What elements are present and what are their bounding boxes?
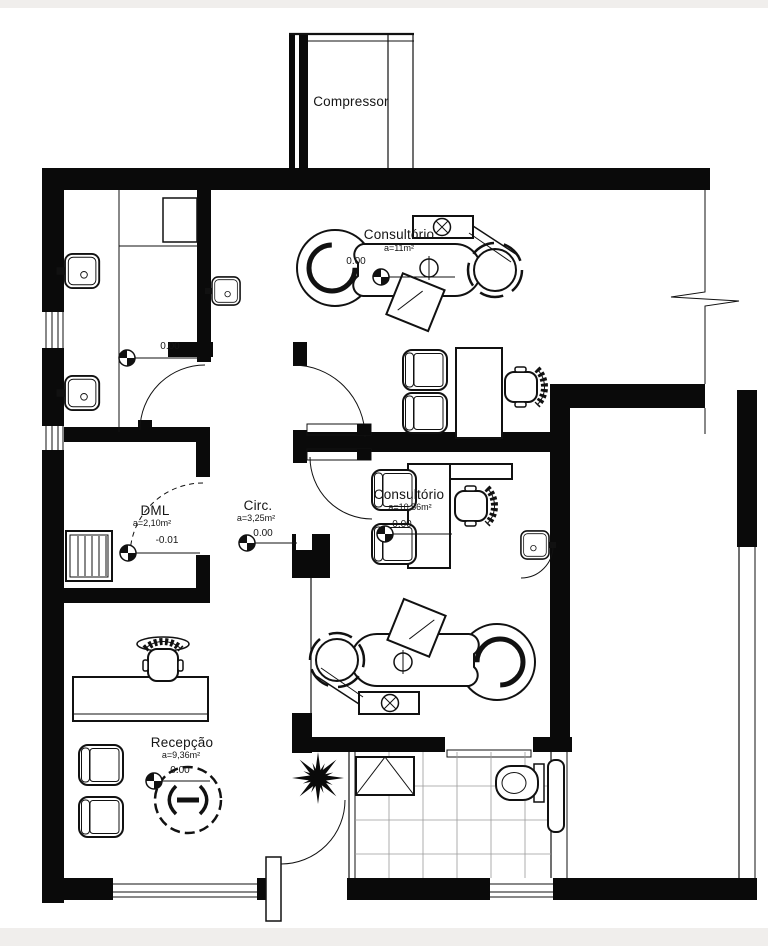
- level-text-dml: -0.01: [156, 536, 179, 546]
- level-marker-recepcao: [146, 773, 162, 789]
- waiting-chair-b: [79, 797, 123, 837]
- floor-plan-drawing: [0, 0, 768, 946]
- area-label-circ: a=3,25m²: [237, 514, 275, 523]
- area-label-recepcao: a=9,36m²: [162, 751, 200, 760]
- consultorio1-furniture: [205, 216, 545, 438]
- toilet: [496, 764, 544, 802]
- dental-chair-2: [310, 599, 535, 714]
- level-text-consultorio1: 0.00: [346, 257, 365, 267]
- level-text-recepcao: 0.00: [170, 766, 189, 776]
- room-label-compressor: Compressor: [313, 95, 389, 109]
- office-chair-consultorio1: [505, 367, 545, 407]
- shower-box: [356, 757, 414, 795]
- floor-plan-page: Compressor Consultório a=11m² 0.00 0.00 …: [0, 0, 768, 946]
- room-label-dml: DML: [140, 504, 169, 518]
- level-marker-dml: [120, 545, 136, 561]
- area-label-dml: a=2,10m²: [133, 519, 171, 528]
- round-table: [155, 767, 221, 833]
- visitor-chair-1a: [403, 350, 447, 390]
- area-label-consultorio1: a=11m²: [384, 244, 414, 253]
- level-text-consultorio2: 0.00: [392, 520, 411, 530]
- hall-counter: [119, 190, 198, 432]
- desk-consultorio1: [456, 348, 502, 438]
- level-marker-consultorio1: [373, 269, 389, 285]
- dml-cabinet: [66, 531, 112, 581]
- plant: [292, 752, 344, 804]
- waiting-chair-a: [79, 745, 123, 785]
- room-label-recepcao: Recepção: [151, 736, 213, 750]
- room-label-consultorio1: Consultório: [364, 228, 435, 242]
- level-marker-hall: [119, 350, 135, 366]
- level-text-hall: 0.00: [160, 342, 179, 352]
- level-text-circ: 0.00: [253, 529, 272, 539]
- level-marker-consultorio2: [377, 526, 393, 542]
- room-label-circ: Circ.: [244, 499, 273, 513]
- area-label-consultorio2: a=10,56m²: [388, 503, 431, 512]
- visitor-chair-1b: [403, 393, 447, 433]
- office-chair-consultorio2: [455, 486, 495, 526]
- bathroom-shelf: [548, 760, 564, 832]
- bathroom: [355, 752, 564, 878]
- room-label-consultorio2: Consultório: [374, 488, 445, 502]
